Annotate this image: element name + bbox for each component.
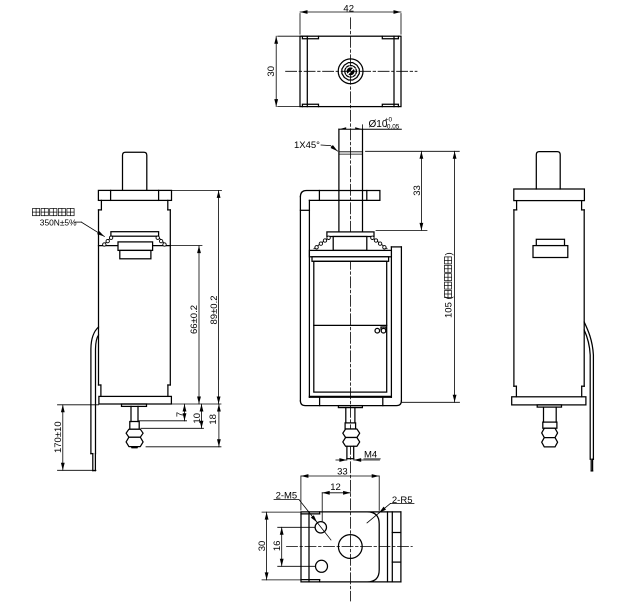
svg-text:1X45°: 1X45° — [294, 140, 320, 151]
svg-text:10: 10 — [192, 413, 203, 424]
svg-text:2-M5: 2-M5 — [276, 491, 298, 502]
svg-text:16: 16 — [272, 541, 283, 552]
svg-text:42: 42 — [343, 3, 354, 14]
svg-text:89±0.2: 89±0.2 — [209, 296, 220, 325]
svg-text:7: 7 — [175, 412, 186, 417]
svg-text:12: 12 — [330, 482, 341, 493]
svg-text:2-R5: 2-R5 — [392, 495, 413, 506]
svg-text:66±0.2: 66±0.2 — [189, 305, 200, 334]
svg-text:30: 30 — [257, 541, 268, 552]
svg-text:18: 18 — [208, 414, 219, 425]
svg-text:30: 30 — [266, 66, 277, 77]
svg-text:170±10: 170±10 — [53, 421, 64, 453]
svg-text:33: 33 — [412, 185, 423, 196]
svg-text:105 (: 105 ( — [444, 296, 455, 318]
svg-text:33: 33 — [337, 466, 348, 477]
svg-text:): ) — [444, 252, 455, 255]
svg-text:350N±5%: 350N±5% — [40, 218, 77, 228]
svg-text:-0.05: -0.05 — [385, 123, 400, 130]
